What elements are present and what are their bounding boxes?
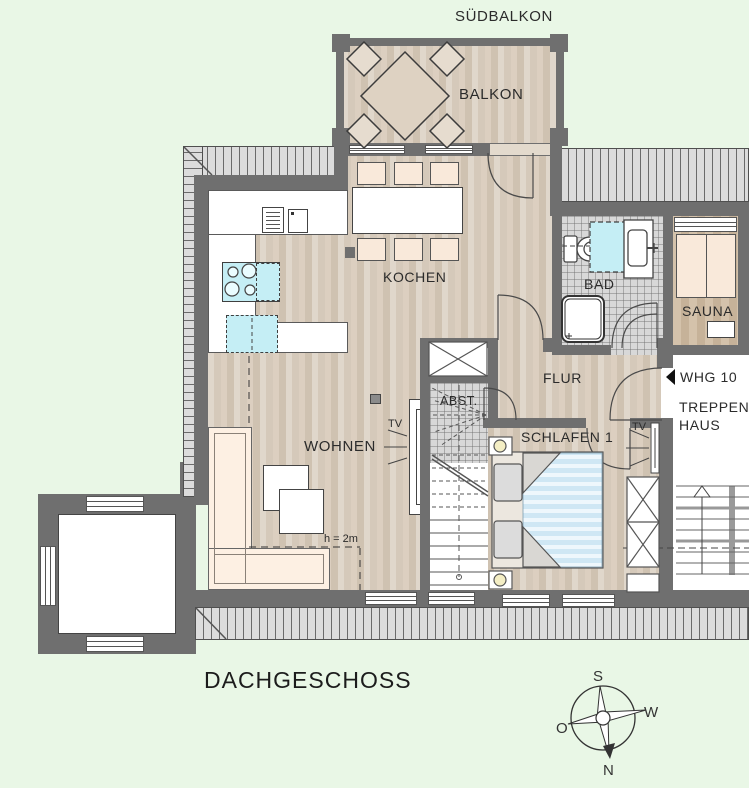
sofa-inner-line-h xyxy=(214,554,324,584)
floor-plan: SÜDBALKON BALKON KOCHEN BAD SAUNA FLUR W… xyxy=(0,0,749,788)
oven-icon xyxy=(262,207,284,233)
room-label-treppenhaus-2: HAUS xyxy=(679,417,720,433)
room-label-kochen: KOCHEN xyxy=(383,269,447,285)
wall-left xyxy=(194,175,208,505)
window-bottom xyxy=(502,594,550,607)
dining-chair xyxy=(394,162,423,185)
plan-title: DACHGESCHOSS xyxy=(204,667,412,694)
wall-flur-door-stub xyxy=(543,338,555,352)
compass-label-s: S xyxy=(593,668,603,685)
room-label-balkon: BALKON xyxy=(459,86,523,103)
dining-chair xyxy=(357,162,386,185)
wall-stair-divider xyxy=(428,375,492,383)
room-label-suedbalkon: SÜDBALKON xyxy=(455,8,553,25)
compass-label-o: O xyxy=(556,720,568,737)
sauna-window-strip xyxy=(674,217,737,232)
kitchen-sink-unit xyxy=(226,315,278,353)
compass-label-w: W xyxy=(644,704,659,721)
unit-label-whg10: WHG 10 xyxy=(680,369,737,385)
height-line-label: h = 2m xyxy=(324,533,358,545)
wall-sauna-left xyxy=(663,214,673,355)
window-bottom xyxy=(365,592,417,605)
wall-stair-right xyxy=(488,338,498,428)
dining-chair xyxy=(357,238,386,261)
roof-overhang-top-left xyxy=(183,146,337,176)
tv-label-bedroom: TV xyxy=(632,421,646,433)
room-label-schlafen: SCHLAFEN 1 xyxy=(521,429,613,445)
dining-chair xyxy=(430,162,459,185)
tower-wall-right xyxy=(176,494,196,654)
tv-label-living: TV xyxy=(388,418,402,430)
compass-rose: S W O N xyxy=(556,668,659,779)
wall-bath-left xyxy=(552,216,562,355)
window-top xyxy=(349,145,405,154)
wall-entry-upper xyxy=(657,338,673,368)
dining-chair xyxy=(430,238,459,261)
sauna-bench-left xyxy=(676,234,707,298)
tower-window-bottom xyxy=(86,636,144,652)
tower-room xyxy=(58,514,176,634)
room-label-wohnen: WOHNEN xyxy=(304,438,376,455)
room-label-flur: FLUR xyxy=(543,370,582,386)
wall-top-left-segment xyxy=(194,175,340,190)
balcony-floor xyxy=(342,46,558,144)
wall-balcony-left-stub xyxy=(334,143,348,190)
tower-window-left xyxy=(40,546,56,606)
sauna-heater xyxy=(707,321,735,338)
balcony-wall-top xyxy=(350,38,550,46)
window-bottom xyxy=(562,594,615,607)
balcony-wall-right xyxy=(556,50,564,130)
wall-stair-top xyxy=(420,338,498,348)
dining-chair xyxy=(394,238,423,261)
wall-bath-bottom-left xyxy=(552,345,611,355)
sauna-bench-right xyxy=(706,234,736,298)
balcony-post xyxy=(550,34,568,52)
compass-north-arrowhead xyxy=(603,743,615,759)
wall-bedroom-right xyxy=(659,420,673,592)
room-label-bad: BAD xyxy=(584,276,615,292)
balcony-wall-left xyxy=(336,50,344,130)
wall-sauna-bottom xyxy=(663,345,749,355)
dishwasher xyxy=(256,263,280,301)
wall-top-right-segment xyxy=(552,202,749,216)
stairwell-zone xyxy=(661,355,749,590)
fridge-dot xyxy=(291,212,294,215)
dining-table xyxy=(352,187,463,234)
room-label-abstellraum: ABST. xyxy=(440,394,478,408)
window-bottom xyxy=(428,592,475,605)
stairwell-rail-bar xyxy=(729,486,735,575)
balcony-door-opening xyxy=(490,144,552,155)
kitchen-wall-nub xyxy=(345,247,355,258)
roof-overhang-top-right xyxy=(560,148,749,202)
room-label-treppenhaus-1: TREPPEN- xyxy=(679,399,749,415)
coffee-table xyxy=(279,489,324,534)
balcony-post xyxy=(332,34,350,52)
window-top xyxy=(425,145,473,154)
wall-sauna-right xyxy=(738,202,749,355)
compass-label-n: N xyxy=(603,762,614,779)
column-marker xyxy=(370,394,381,404)
room-label-sauna: SAUNA xyxy=(682,303,733,319)
tower-window-top xyxy=(86,496,144,512)
wall-bedroom-top-left xyxy=(483,418,586,428)
roof-overhang-bottom xyxy=(195,607,749,640)
